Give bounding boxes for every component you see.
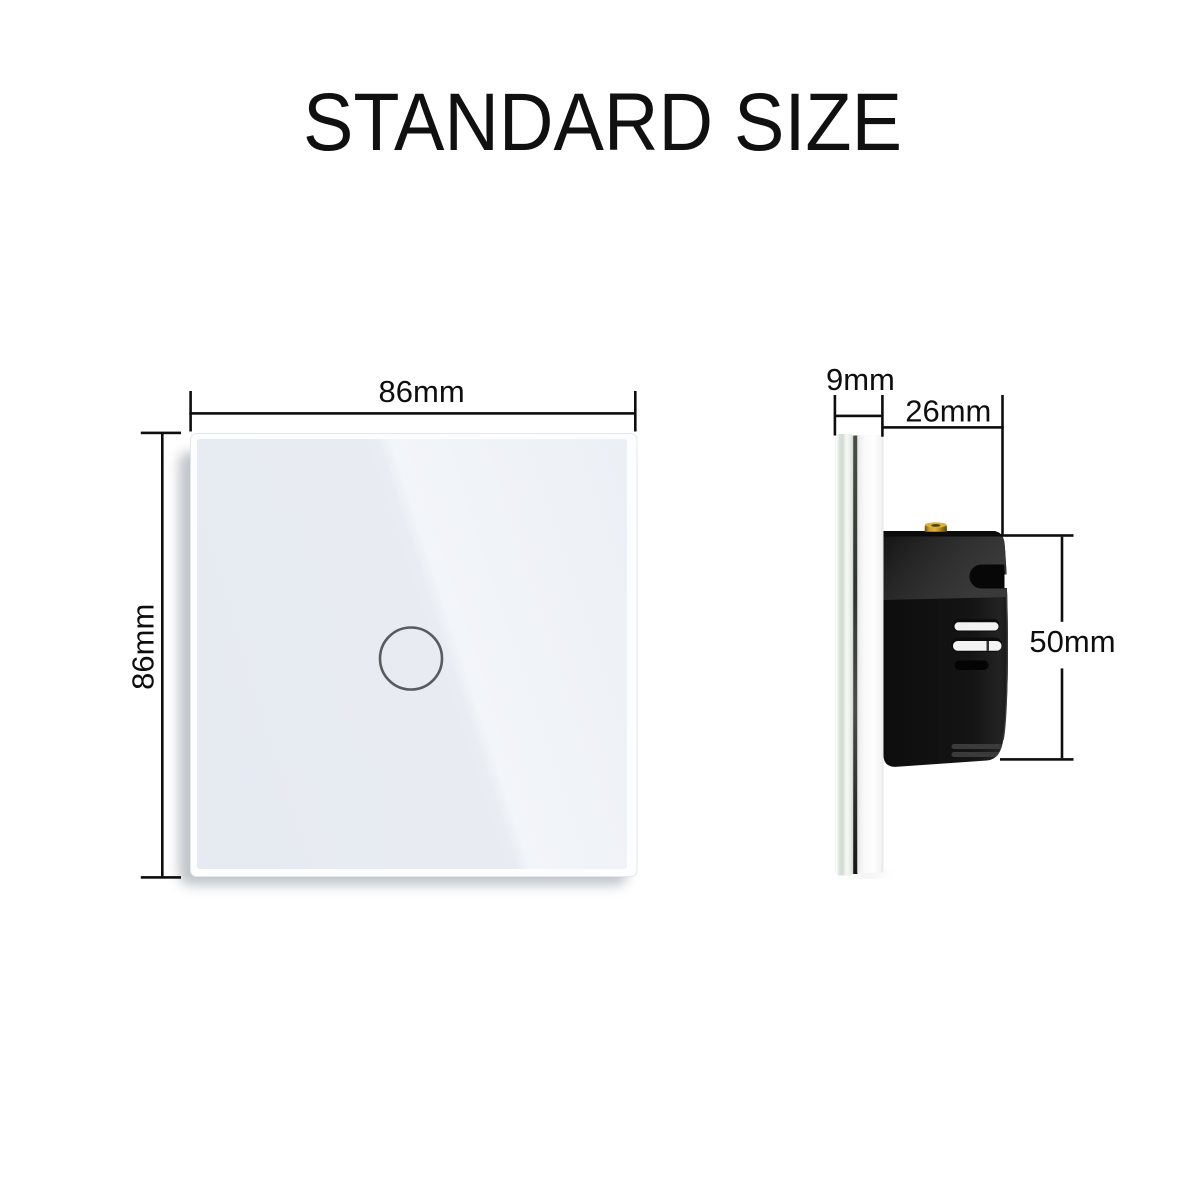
svg-text:86mm: 86mm <box>125 604 160 690</box>
svg-text:26mm: 26mm <box>905 394 991 429</box>
svg-text:86mm: 86mm <box>379 374 465 409</box>
svg-text:50mm: 50mm <box>1029 624 1115 659</box>
svg-text:STANDARD SIZE: STANDARD SIZE <box>303 77 902 168</box>
svg-text:9mm: 9mm <box>826 362 895 397</box>
